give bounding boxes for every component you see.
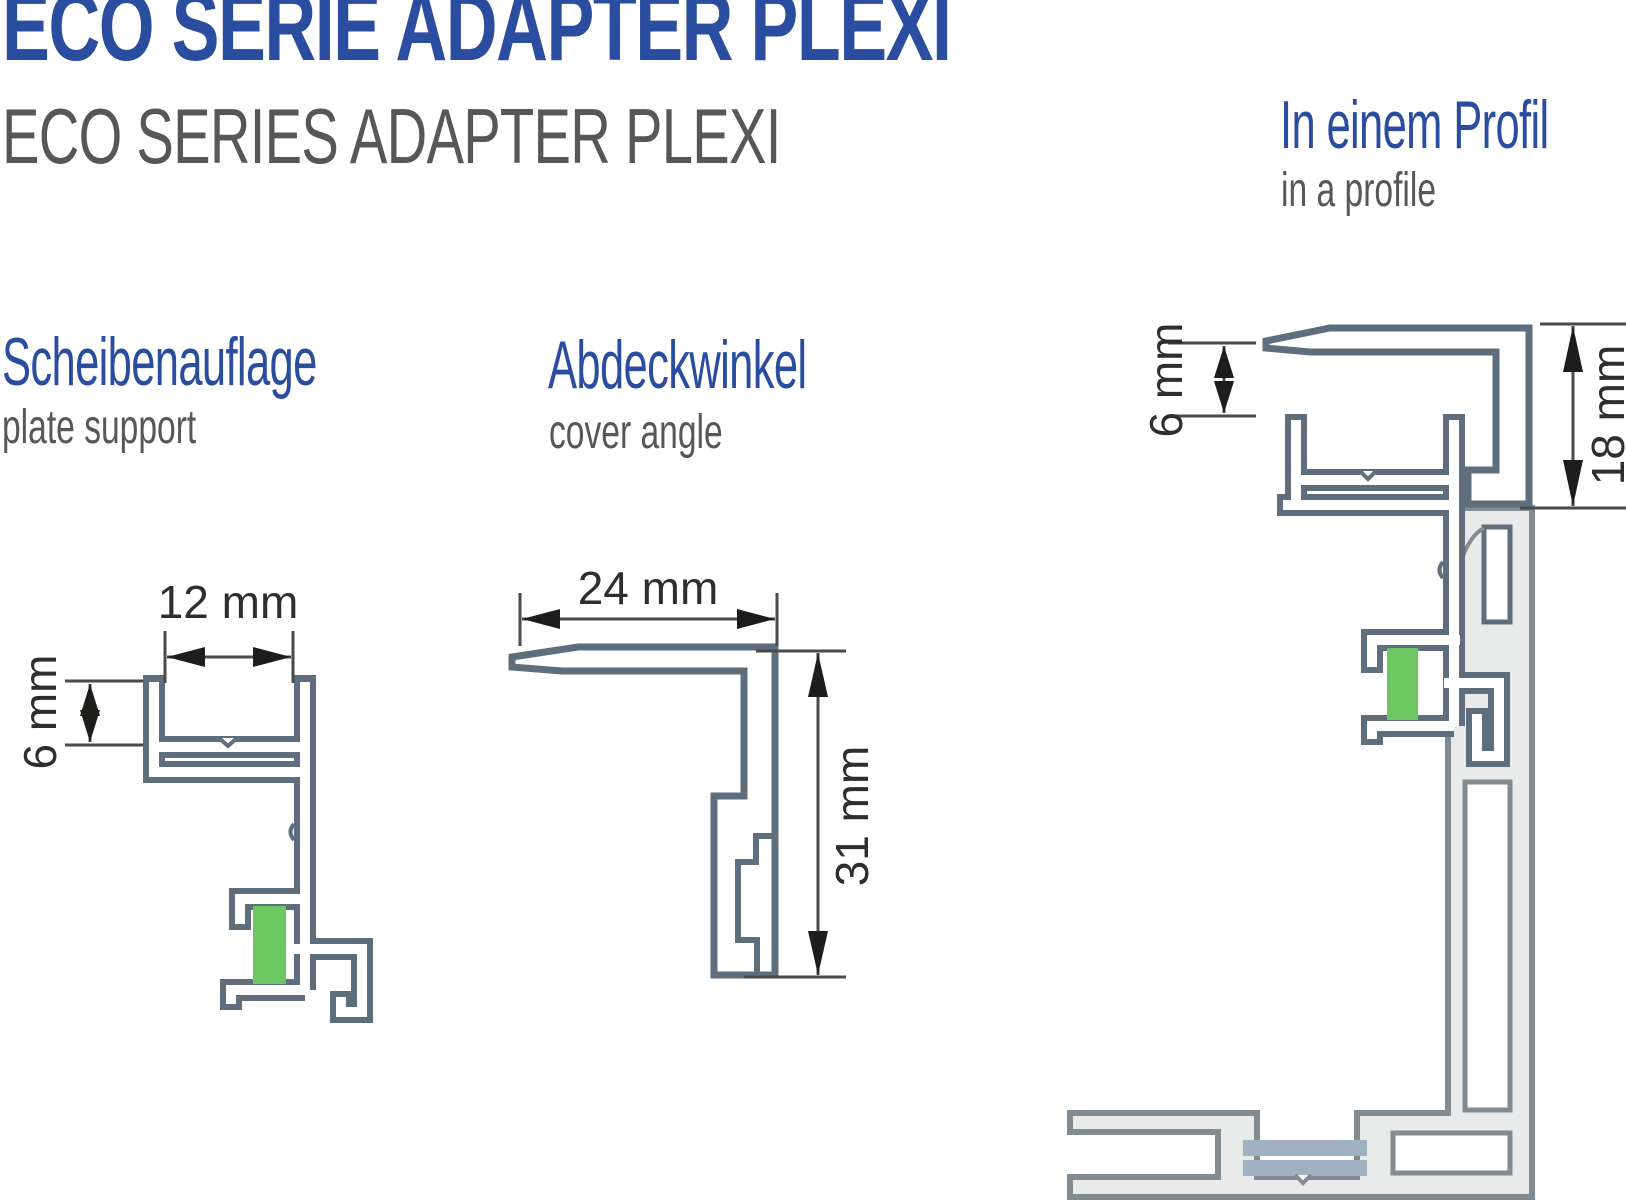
cover-angle-drawing [512, 647, 775, 975]
dim-label-12mm: 12 mm [158, 576, 299, 628]
dimension-18mm: 18 mm [1520, 324, 1626, 508]
dim-label-24mm: 24 mm [578, 562, 719, 614]
break-mark [1440, 562, 1444, 578]
section-subheading-cover-angle: cover angle [549, 409, 723, 457]
dimension-12mm: 12 mm [158, 576, 299, 683]
plate-support-drawing [143, 675, 362, 1012]
profile-wall-slot [1465, 782, 1510, 1110]
glass-panel-bar-bottom [1243, 1160, 1367, 1176]
dim-label-31mm: 31 mm [826, 746, 878, 887]
profile-snap-groove [1484, 527, 1510, 622]
page-subtitle: ECO SERIES ADAPTER PLEXI [2, 97, 781, 175]
section-subheading-plate-support: plate support [2, 404, 196, 452]
dim-label-18mm: 18 mm [1582, 345, 1626, 486]
dimension-6mm-left: 6 mm [14, 655, 143, 770]
dimension-6mm-right: 6 mm [1140, 323, 1256, 438]
section-heading-plate-support: Scheibenauflage [2, 328, 317, 396]
glass-panel-bar-top [1243, 1140, 1367, 1156]
section-heading-in-profile: In einem Profil [1280, 91, 1549, 159]
section-heading-cover-angle: Abdeckwinkel [548, 331, 806, 399]
plexi-adapter-insert [1387, 648, 1418, 720]
break-mark [291, 824, 295, 840]
plexi-adapter-insert [253, 906, 286, 984]
dim-label-6mm-left: 6 mm [14, 655, 66, 770]
dimension-24mm: 24 mm [520, 562, 777, 646]
page: 12 mm 6 mm 24 mm 31 mm [0, 0, 1626, 1200]
section-subheading-in-profile: in a profile [1281, 167, 1436, 215]
profile-base-chamber [1393, 1133, 1510, 1173]
dim-label-6mm-right: 6 mm [1140, 323, 1192, 438]
page-title: ECO SERIE ADAPTER PLEXI [2, 0, 950, 75]
